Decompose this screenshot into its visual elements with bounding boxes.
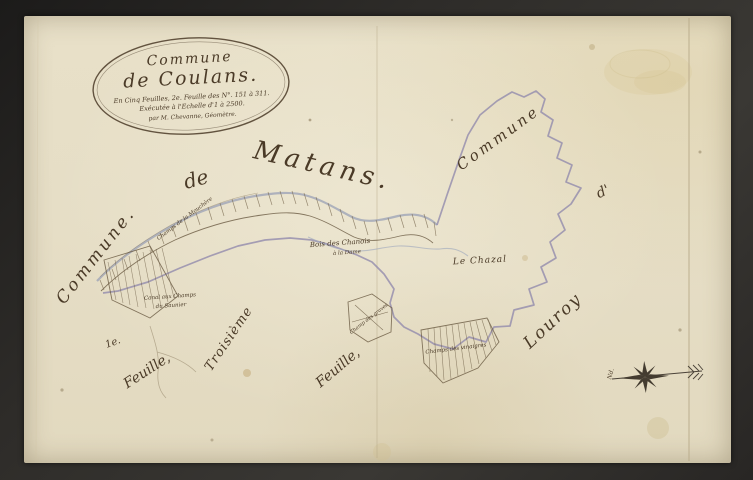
label-mouchere: Champs de la Mouchère bbox=[156, 196, 214, 242]
label-feuille3: Feuille, bbox=[313, 345, 363, 391]
map-labels: Commune. de Matans. Commune d' Louroy 1e… bbox=[0, 0, 753, 480]
label-champs-vinaigres: Champs des vinaigres bbox=[425, 342, 487, 355]
scanned-cadastral-map: Commune de Coulans. En Cinq Feuilles, 2e… bbox=[0, 0, 753, 480]
label-commune-top-right: Commune bbox=[453, 102, 543, 174]
label-commune-left: Commune. bbox=[52, 204, 140, 308]
label-feuille1: Feuille, bbox=[121, 350, 174, 392]
label-troisieme: Troisième bbox=[202, 304, 256, 374]
label-champ-graves: Champ des graves bbox=[349, 302, 390, 336]
label-le-chazal: Le Chazal bbox=[453, 255, 508, 268]
label-canal-1: Canal aux Champs bbox=[144, 292, 196, 302]
label-d-apostrophe: d' bbox=[594, 182, 612, 202]
label-matans: Matans. bbox=[251, 135, 396, 196]
label-bois-chanois-1: Bois des Chanois bbox=[310, 237, 371, 249]
label-canal-2: du Saunier bbox=[156, 302, 187, 310]
label-de: de bbox=[181, 164, 211, 194]
label-north: Nd. bbox=[606, 368, 616, 380]
label-feuille1-num: 1e. bbox=[104, 335, 122, 351]
label-bois-chanois-2: à la Dame bbox=[333, 249, 361, 257]
label-louroy: Louroy bbox=[520, 289, 587, 353]
